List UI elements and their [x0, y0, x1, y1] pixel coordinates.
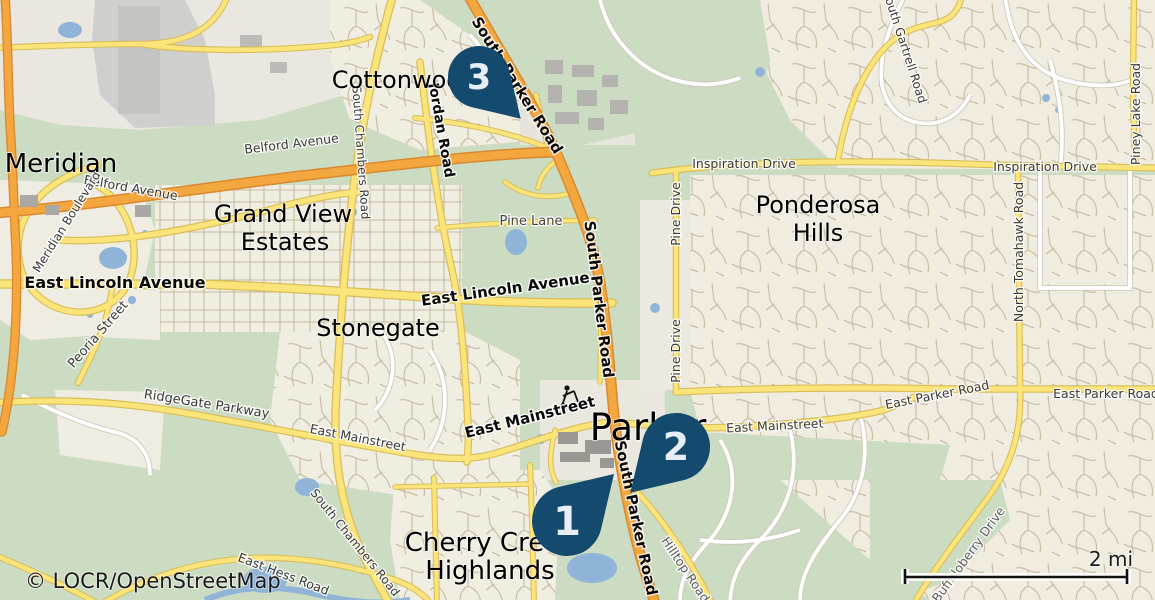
road-label-east-lincoln-avenue-w: East Lincoln Avenue	[24, 273, 205, 292]
marker-2-number: 2	[663, 425, 689, 469]
marker-1-number: 1	[553, 499, 581, 545]
place-label-hills: Hills	[793, 219, 844, 247]
road-label-inspiration-drive-e: Inspiration Drive	[993, 159, 1097, 174]
map-svg: South Parker Road South Parker Road Sout…	[0, 0, 1155, 600]
road-label-inspiration-drive-w: Inspiration Drive	[692, 156, 796, 171]
attribution-text: © LOCR/OpenStreetMap	[25, 569, 281, 593]
road-label-north-tomahawk-road: North Tomahawk Road	[1011, 182, 1026, 322]
place-label-meridian: Meridian	[5, 149, 117, 179]
road-label-east-parker-road-e: East Parker Road	[1053, 386, 1155, 401]
map-canvas[interactable]: South Parker Road South Parker Road Sout…	[0, 0, 1155, 600]
road-label-pine-lane: Pine Lane	[500, 214, 563, 229]
road-label-piney-lake-road: Piney Lake Road	[1128, 63, 1143, 165]
place-label-grand-view: Grand View	[214, 200, 352, 228]
road-label-pine-drive-s: Pine Drive	[668, 319, 683, 383]
road-label-pine-drive-n: Pine Drive	[668, 182, 683, 246]
place-label-estates: Estates	[241, 228, 329, 256]
place-label-highlands: Highlands	[425, 556, 554, 586]
place-label-stonegate: Stonegate	[316, 314, 439, 342]
marker-3-number: 3	[467, 58, 491, 98]
scale-label: 2 mi	[1089, 547, 1133, 571]
place-label-ponderosa: Ponderosa	[756, 191, 881, 219]
